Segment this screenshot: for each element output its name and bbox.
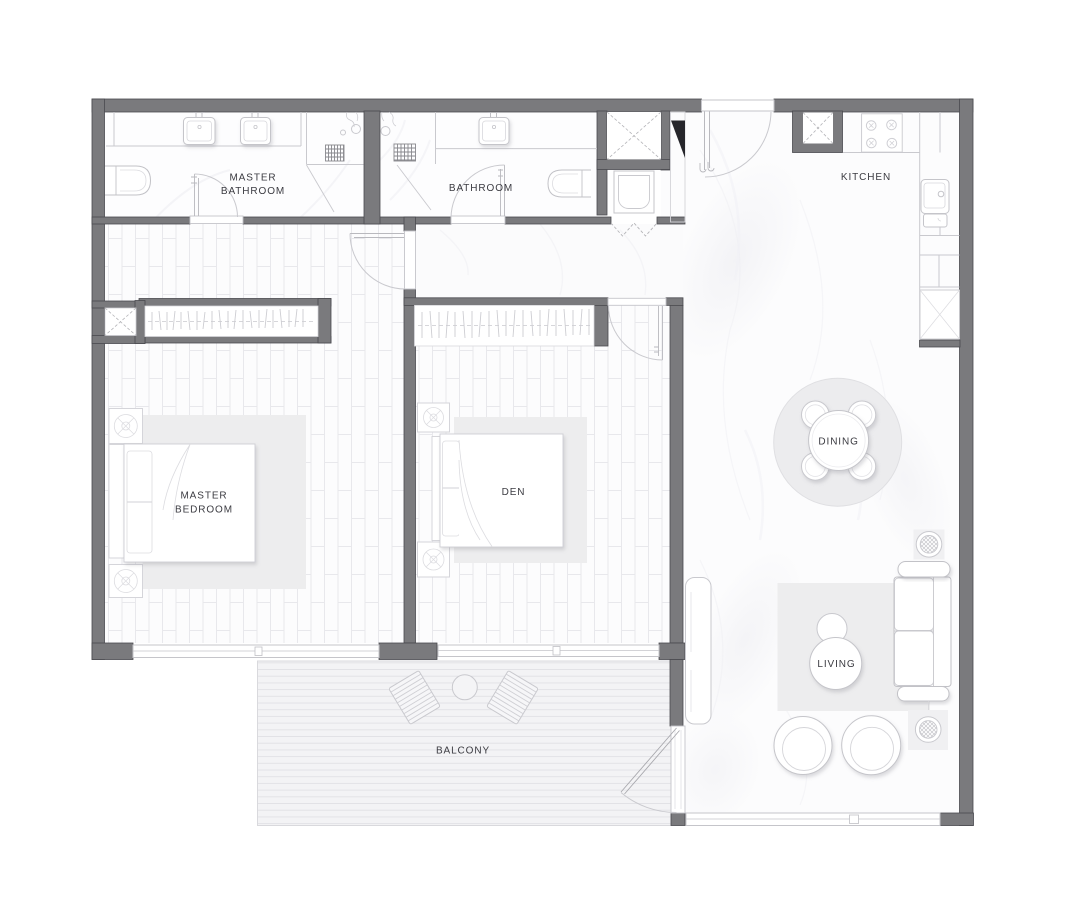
svg-text:BEDROOM: BEDROOM bbox=[175, 505, 233, 516]
svg-text:KITCHEN: KITCHEN bbox=[841, 172, 891, 183]
svg-text:MASTER: MASTER bbox=[180, 491, 227, 502]
svg-text:MASTER: MASTER bbox=[229, 173, 276, 184]
svg-text:BALCONY: BALCONY bbox=[436, 746, 490, 757]
svg-text:BATHROOM: BATHROOM bbox=[449, 183, 513, 194]
svg-text:BATHROOM: BATHROOM bbox=[221, 186, 285, 197]
svg-text:LIVING: LIVING bbox=[817, 659, 855, 670]
svg-text:DEN: DEN bbox=[502, 487, 526, 498]
svg-text:DINING: DINING bbox=[818, 437, 858, 448]
